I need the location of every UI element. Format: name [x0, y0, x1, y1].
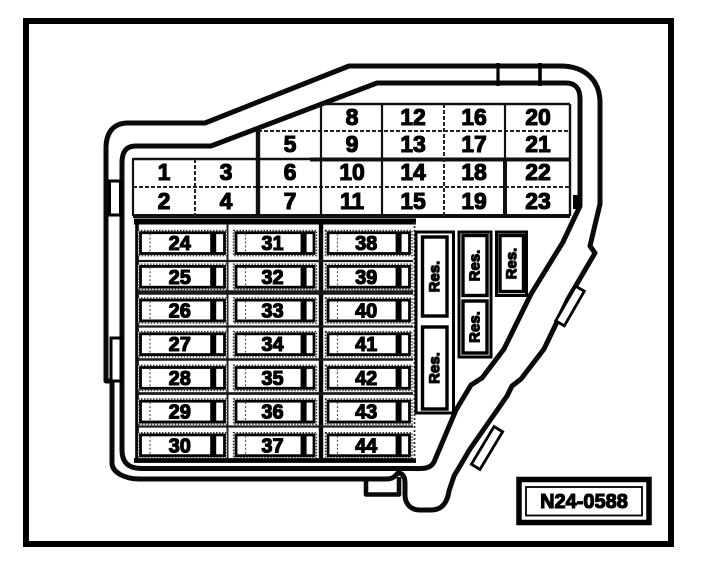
svg-text:14: 14 [400, 159, 426, 185]
svg-text:42: 42 [355, 368, 377, 390]
svg-text:Res.: Res. [467, 311, 484, 343]
svg-text:29: 29 [169, 402, 191, 424]
svg-text:16: 16 [461, 104, 487, 130]
svg-text:27: 27 [169, 334, 191, 356]
svg-text:1: 1 [158, 159, 171, 185]
svg-text:11: 11 [340, 188, 365, 214]
svg-text:2: 2 [158, 188, 171, 214]
svg-text:15: 15 [400, 188, 426, 214]
svg-text:37: 37 [261, 435, 283, 457]
svg-text:38: 38 [355, 233, 377, 255]
svg-text:26: 26 [169, 301, 191, 323]
svg-text:13: 13 [400, 131, 426, 157]
svg-text:9: 9 [346, 131, 359, 157]
svg-text:28: 28 [169, 368, 191, 390]
svg-text:39: 39 [355, 267, 377, 289]
svg-text:18: 18 [461, 159, 487, 185]
svg-text:43: 43 [355, 402, 377, 424]
svg-text:4: 4 [220, 188, 233, 214]
svg-text:21: 21 [525, 131, 551, 157]
svg-text:23: 23 [525, 188, 551, 214]
svg-text:6: 6 [284, 159, 297, 185]
svg-text:12: 12 [400, 104, 426, 130]
svg-text:34: 34 [261, 334, 284, 356]
svg-text:Res.: Res. [503, 248, 520, 280]
svg-text:3: 3 [220, 159, 233, 185]
svg-text:22: 22 [525, 159, 551, 185]
svg-text:10: 10 [339, 159, 365, 185]
svg-text:33: 33 [261, 301, 283, 323]
svg-text:32: 32 [261, 267, 283, 289]
svg-text:35: 35 [261, 368, 283, 390]
svg-text:40: 40 [355, 301, 377, 323]
svg-text:19: 19 [461, 188, 487, 214]
svg-text:24: 24 [169, 233, 192, 255]
svg-text:20: 20 [525, 104, 551, 130]
svg-text:25: 25 [169, 267, 191, 289]
svg-text:17: 17 [461, 131, 487, 157]
svg-text:Res.: Res. [467, 250, 484, 282]
svg-text:Res.: Res. [426, 261, 443, 293]
svg-text:N24-0588: N24-0588 [540, 491, 628, 513]
svg-text:36: 36 [261, 402, 283, 424]
svg-text:5: 5 [284, 131, 297, 157]
svg-text:30: 30 [169, 435, 191, 457]
svg-text:41: 41 [355, 334, 377, 356]
svg-text:31: 31 [261, 233, 283, 255]
svg-text:7: 7 [284, 188, 297, 214]
svg-text:8: 8 [346, 104, 359, 130]
svg-text:44: 44 [355, 435, 378, 457]
svg-text:Res.: Res. [426, 352, 443, 384]
